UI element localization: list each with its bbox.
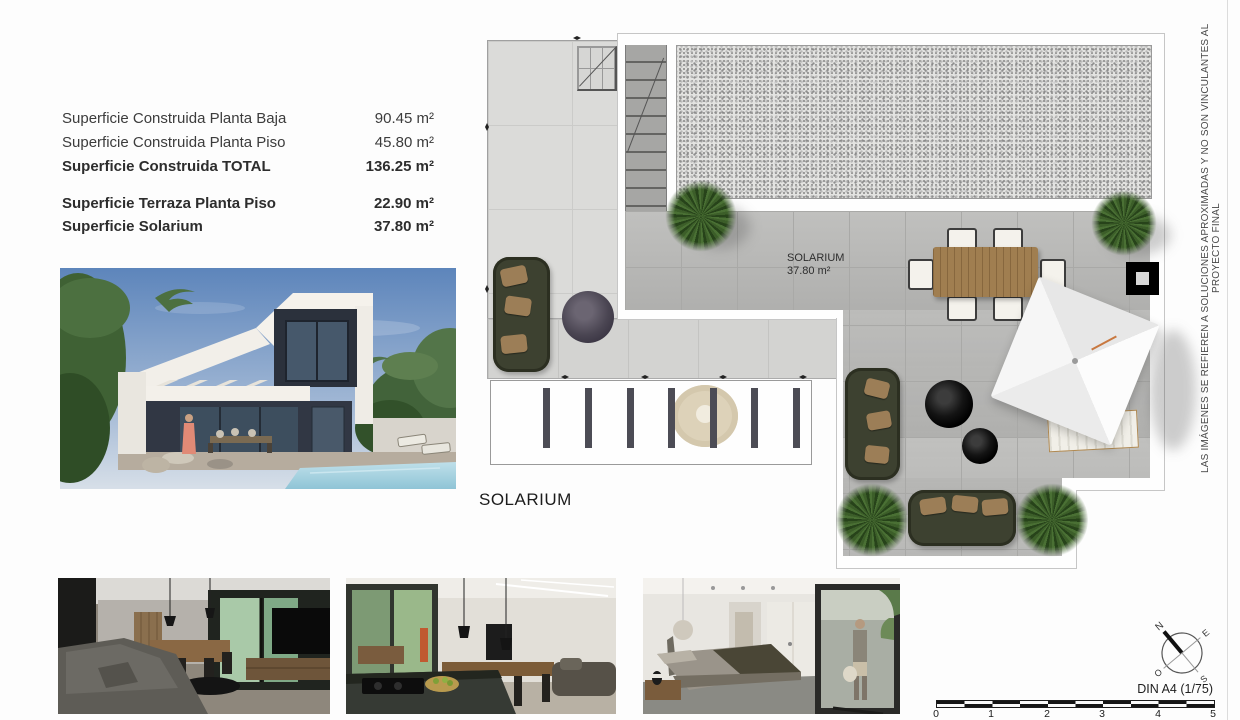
plant-bottom-left [836,482,908,558]
living-room-photo [58,578,330,714]
disclaimer-text: LAS IMÁGENES SE REFIEREN A SOLUCIONES AP… [1200,22,1216,474]
pergola-round-table [672,385,738,447]
sofa-solarium-bottom [908,490,1016,546]
plant-top-left [665,180,737,252]
surface-label: Superficie Solarium [62,218,203,235]
pergola-beam [543,388,550,448]
north-arrow-icon: N E S O [1147,612,1221,692]
surface-value: 22.90 m² [374,195,434,212]
pergola-beam [751,388,758,448]
kitchen-photo [346,578,616,714]
surface-value: 37.80 m² [374,218,434,235]
scale-tick-label: 4 [1151,708,1165,720]
scale-bar [936,700,1215,708]
compass-north-label: N [1154,620,1167,633]
pergola-strip [490,380,812,465]
bedroom-photo [643,578,900,714]
solarium-room-name: SOLARIUM [787,252,844,265]
sofa-solarium-left [845,368,900,480]
sofa-terrace [493,257,550,372]
compass-east-label: E [1200,627,1211,639]
dining-chair [993,296,1023,321]
pergola-beam [668,388,675,448]
pergola-beam [793,388,800,448]
plan-gravel-roof [676,45,1152,199]
dining-chair [908,259,934,290]
surface-label: Superficie Construida Planta Piso [62,134,285,151]
plan-chimney [1126,262,1159,295]
surface-row: Superficie Construida TOTAL 136.25 m² [62,155,434,177]
scale-tick-label: 0 [929,708,943,720]
surface-label: Superficie Construida Planta Baja [62,110,286,127]
pouf-terrace [562,291,614,343]
scale-format-label: DIN A4 (1/75) [1093,682,1213,696]
pouf-large [925,380,973,428]
pouf-small [962,428,998,464]
compass-west-label: O [1152,667,1164,679]
surface-row: Superficie Construida Planta Baja 90.45 … [62,107,434,129]
solarium-caption: SOLARIUM [479,490,572,510]
parasol-shadow [1150,330,1196,450]
dining-table [933,247,1038,297]
surface-row: Superficie Construida Planta Piso 45.80 … [62,131,434,153]
brochure-page: Superficie Construida Planta Baja 90.45 … [0,0,1240,720]
villa-exterior-photo [60,268,456,489]
surface-value: 45.80 m² [375,134,434,151]
dining-chair [947,296,977,321]
surface-label: Superficie Construida TOTAL [62,158,271,175]
pergola-beam [585,388,592,448]
scale-tick-label: 3 [1095,708,1109,720]
scale-tick-label: 2 [1040,708,1054,720]
surface-row: Superficie Terraza Planta Piso 22.90 m² [62,192,434,214]
scale-tick-label: 5 [1206,708,1220,720]
surface-row: Superficie Solarium 37.80 m² [62,215,434,237]
solarium-room-area: 37.80 m² [787,265,844,278]
pergola-beam [710,388,717,448]
plant-bottom-right [1016,482,1088,558]
page-edge-line [1227,0,1228,720]
solarium-room-label: SOLARIUM 37.80 m² [787,252,844,277]
surface-label: Superficie Terraza Planta Piso [62,195,276,212]
surface-value: 90.45 m² [375,110,434,127]
plant-top-right [1091,190,1157,256]
surface-value: 136.25 m² [366,158,434,175]
pergola-beam [627,388,634,448]
scale-tick-label: 1 [984,708,998,720]
